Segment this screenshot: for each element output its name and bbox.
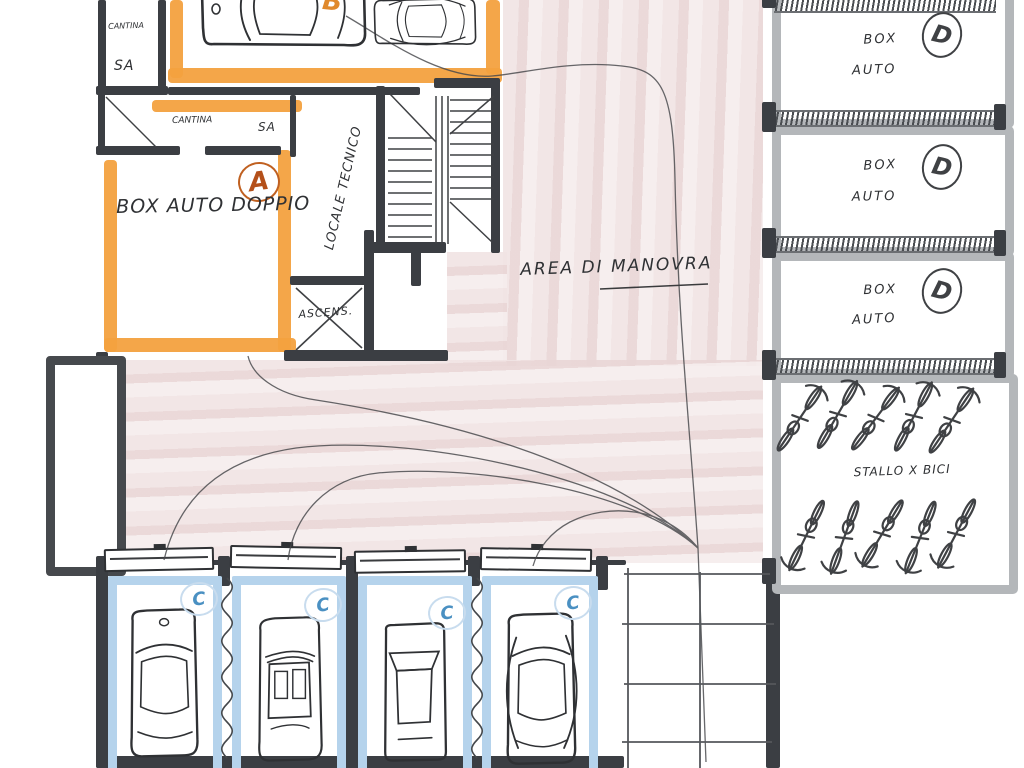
wall-segment [98, 92, 105, 150]
wall-segment [762, 350, 776, 380]
garage-door-hatch [774, 236, 996, 253]
wall-orange-b-right [486, 0, 500, 74]
garage-door-hatch [774, 0, 996, 13]
ramp [622, 568, 776, 768]
wall-segment [994, 230, 1006, 256]
wall-segment [158, 0, 166, 92]
wall-segment [96, 556, 108, 768]
floor-plan: CANTINA SA CANTINA SA A BOX AUTO DOPPIO … [0, 0, 1024, 768]
wall-segment [994, 352, 1006, 378]
label-sa-mid: SA [258, 120, 276, 134]
box-d3-line1: BOX [840, 281, 920, 299]
wall-segment [762, 102, 776, 132]
label-box-auto-doppio: BOX AUTO DOPPIO [116, 193, 310, 218]
wall-segment [411, 248, 421, 286]
wall-segment [372, 242, 446, 253]
wall-orange-b-left [170, 0, 183, 78]
label-ascensore: ASCENS. [298, 304, 354, 321]
wall-segment [376, 86, 385, 253]
wall-segment [205, 146, 281, 155]
wall-segment [762, 228, 776, 258]
manoeuvre-area-arm [503, 0, 763, 366]
garage-door [480, 547, 592, 572]
left-annex-room [46, 356, 126, 576]
wall-segment [98, 0, 106, 90]
garage-door-hatch [774, 358, 996, 375]
label-cantina-top: CANTINA [108, 21, 144, 31]
garage-door [104, 547, 214, 572]
wall-segment [290, 276, 366, 285]
manoeuvre-area-main [112, 360, 763, 563]
wall-segment [364, 230, 374, 356]
box-d1-line2: AUTO [834, 61, 914, 79]
label-cantina-mid: CANTINA [172, 115, 212, 126]
bike-room [772, 374, 1018, 594]
storage-diagonal [106, 97, 156, 147]
unit-b-badge: B [321, 0, 345, 18]
wall-orange-band [152, 100, 302, 112]
wall-segment [491, 80, 500, 253]
wall-segment [762, 558, 776, 584]
wall-segment [290, 95, 296, 157]
wall-segment [346, 556, 358, 768]
box-d2-line2: AUTO [834, 189, 914, 205]
manoeuvre-area-notch [447, 252, 507, 366]
wall-segment [762, 0, 776, 8]
wall-orange-a-left [104, 160, 117, 352]
wall-orange-a-bottom [104, 338, 296, 352]
garage-door-hatch [774, 110, 996, 127]
car-icon [374, 0, 475, 45]
wall-segment [284, 350, 448, 361]
label-sa-top: SA [114, 58, 134, 74]
stairs-icon [388, 94, 494, 244]
label-locale-tecnico: LOCALE TECNICO [322, 125, 365, 252]
wall-segment [994, 104, 1006, 130]
garage-door [230, 545, 342, 570]
garage-door [354, 549, 466, 574]
wall-segment [96, 146, 180, 155]
